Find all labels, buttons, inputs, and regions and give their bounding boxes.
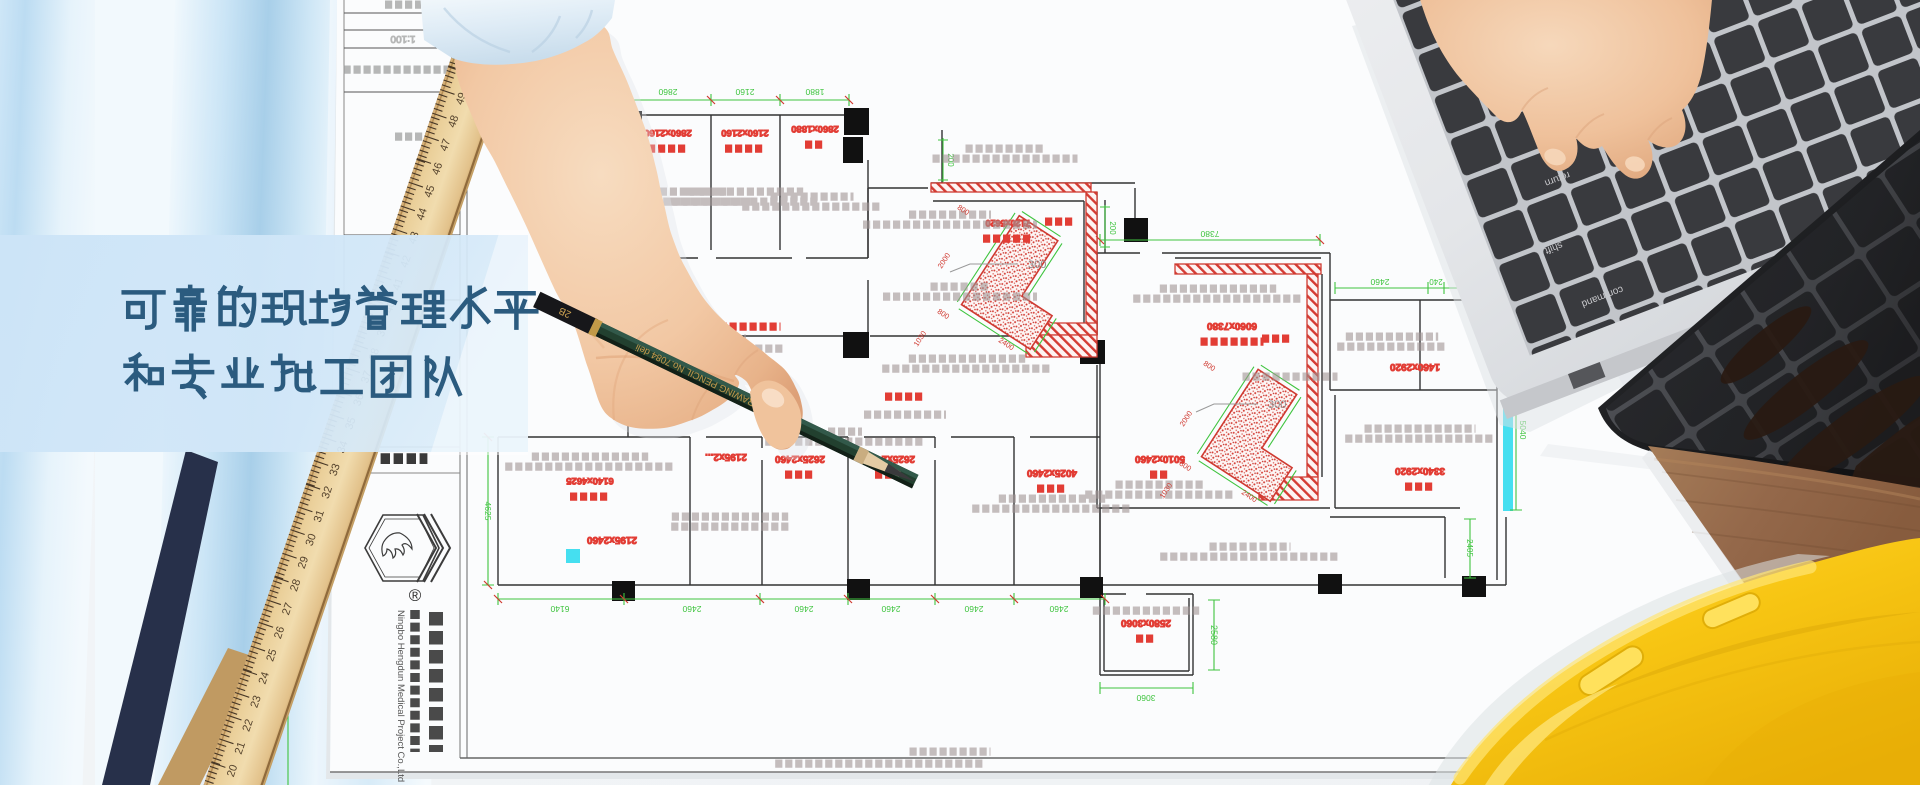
svg-text:4025x2460: 4025x2460 <box>1027 467 1077 478</box>
svg-text:1880: 1880 <box>805 87 824 97</box>
svg-text:5010x2460: 5010x2460 <box>1135 453 1185 464</box>
svg-text:2860: 2860 <box>658 87 677 97</box>
svg-text:200: 200 <box>1108 221 1117 235</box>
svg-text:2160x2160: 2160x2160 <box>721 127 769 138</box>
svg-text:2460: 2460 <box>1370 277 1389 287</box>
svg-text:7380: 7380 <box>1200 229 1219 239</box>
svg-text:300: 300 <box>1028 259 1046 271</box>
svg-text:Ningbo Hengdun Medical Project: Ningbo Hengdun Medical Project Co.,Ltd <box>395 610 406 782</box>
svg-text:2405: 2405 <box>1465 539 1474 557</box>
svg-text:2460: 2460 <box>881 604 900 614</box>
svg-text:6060x7380: 6060x7380 <box>1207 320 1257 331</box>
svg-text:240: 240 <box>1429 277 1443 286</box>
svg-text:1:100: 1:100 <box>390 33 415 44</box>
svg-text:3340x2920: 3340x2920 <box>1395 465 1445 476</box>
svg-text:2195x2460: 2195x2460 <box>587 534 637 545</box>
svg-text:2160: 2160 <box>735 87 754 97</box>
svg-text:300: 300 <box>1268 399 1286 411</box>
svg-text:2860x1880: 2860x1880 <box>791 123 839 134</box>
svg-text:2460: 2460 <box>964 604 983 614</box>
svg-text:®: ® <box>409 586 422 605</box>
svg-text:2460: 2460 <box>682 604 701 614</box>
svg-text:2195x2...: 2195x2... <box>705 451 747 462</box>
svg-text:6140: 6140 <box>550 604 569 614</box>
svg-text:4625: 4625 <box>483 502 493 521</box>
svg-text:2580x3060: 2580x3060 <box>1121 617 1171 628</box>
svg-text:2460: 2460 <box>1049 604 1068 614</box>
svg-text:2580: 2580 <box>1209 625 1219 645</box>
svg-text:1460x2920: 1460x2920 <box>1390 361 1440 372</box>
svg-text:2460: 2460 <box>794 604 813 614</box>
svg-text:6140x4625: 6140x4625 <box>566 475 614 486</box>
svg-text:3060: 3060 <box>1136 693 1155 703</box>
